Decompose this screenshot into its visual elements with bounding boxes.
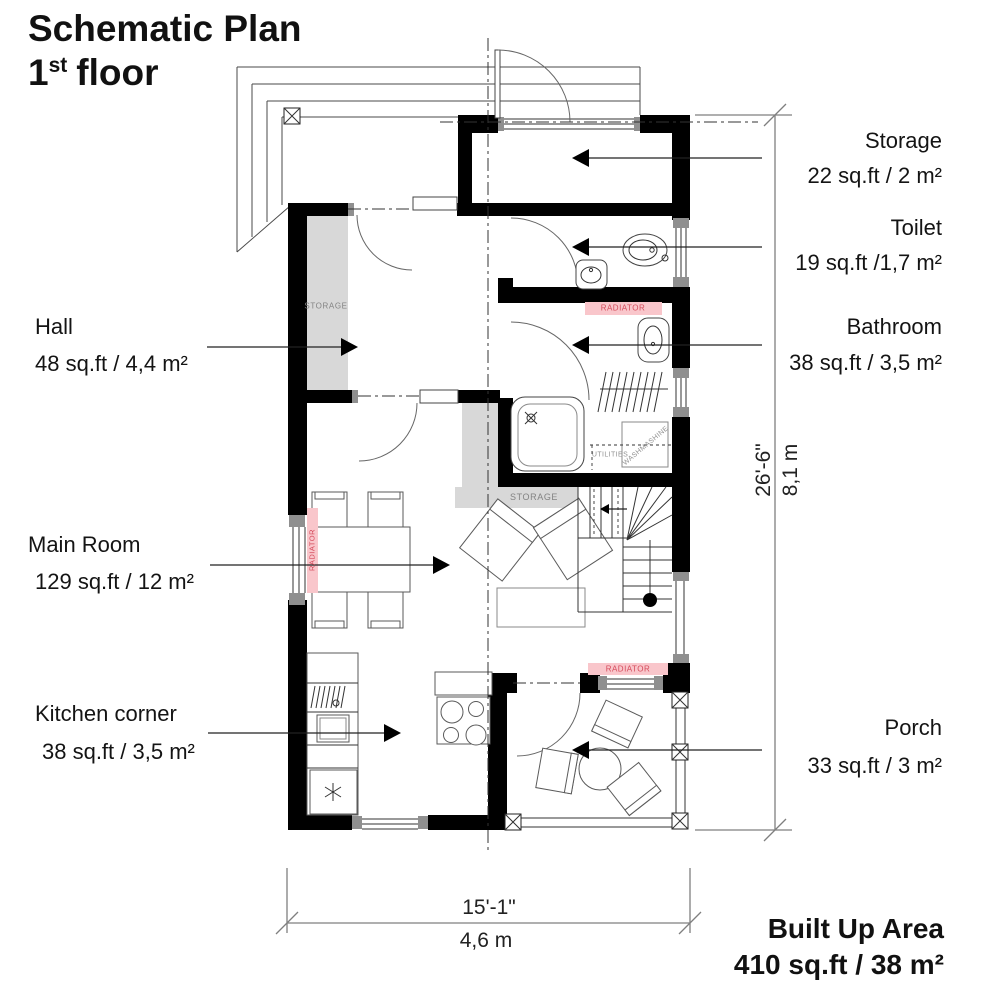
page-title: Schematic Plan [28,8,302,50]
built-up-area-label: Built Up Area [768,913,944,945]
page-subtitle: 1stfloor [28,52,158,94]
floor-plan-drawing [0,0,1000,1000]
label-kitchen-area: 38 sq.ft / 3,5 m² [42,739,195,765]
label-toilet-area: 19 sq.ft /1,7 m² [795,250,942,276]
label-bathroom-name: Bathroom [847,314,942,340]
dim-width-imperial: 15'-1" [462,896,516,920]
dim-height-metric: 8,1 m [779,444,803,497]
utilities-label: UTILITIES [592,452,628,459]
label-main-room-name: Main Room [28,532,140,558]
porch-furniture [536,700,661,815]
label-main-room-area: 129 sq.ft / 12 m² [35,569,194,595]
storage-strip-hall-label: STORAGE [304,302,347,311]
dining-set [308,492,410,628]
radiator-porch-label: RADIATOR [606,665,651,674]
label-kitchen-name: Kitchen corner [35,701,177,727]
kitchen-fittings [307,653,492,815]
label-bathroom-area: 38 sq.ft / 3,5 m² [789,350,942,376]
floor-plan-page: Schematic Plan 1stfloor Hall 48 sq.ft / … [0,0,1000,1000]
storage-strip-main-label: STORAGE [510,492,558,502]
title-line1: Schematic Plan [28,8,302,49]
entrance-door [495,50,640,133]
label-porch-area: 33 sq.ft / 3 m² [808,753,943,779]
radiator-window-label: RADIATOR [308,529,317,571]
dim-height-imperial: 26'-6" [752,443,776,497]
toilet-fixtures [576,234,668,289]
label-storage-area: 22 sq.ft / 2 m² [808,163,943,189]
floor-number: 1 [28,52,49,93]
label-hall-name: Hall [35,314,73,340]
label-hall-area: 48 sq.ft / 4,4 m² [35,351,188,377]
radiator-bathroom-label: RADIATOR [601,304,646,313]
built-up-area-value: 410 sq.ft / 38 m² [734,949,944,981]
floor-word: floor [76,52,158,93]
dim-width-metric: 4,6 m [460,929,513,953]
label-porch-name: Porch [885,715,942,741]
label-storage-name: Storage [865,128,942,154]
floor-ordinal: st [49,54,68,77]
label-toilet-name: Toilet [891,215,942,241]
